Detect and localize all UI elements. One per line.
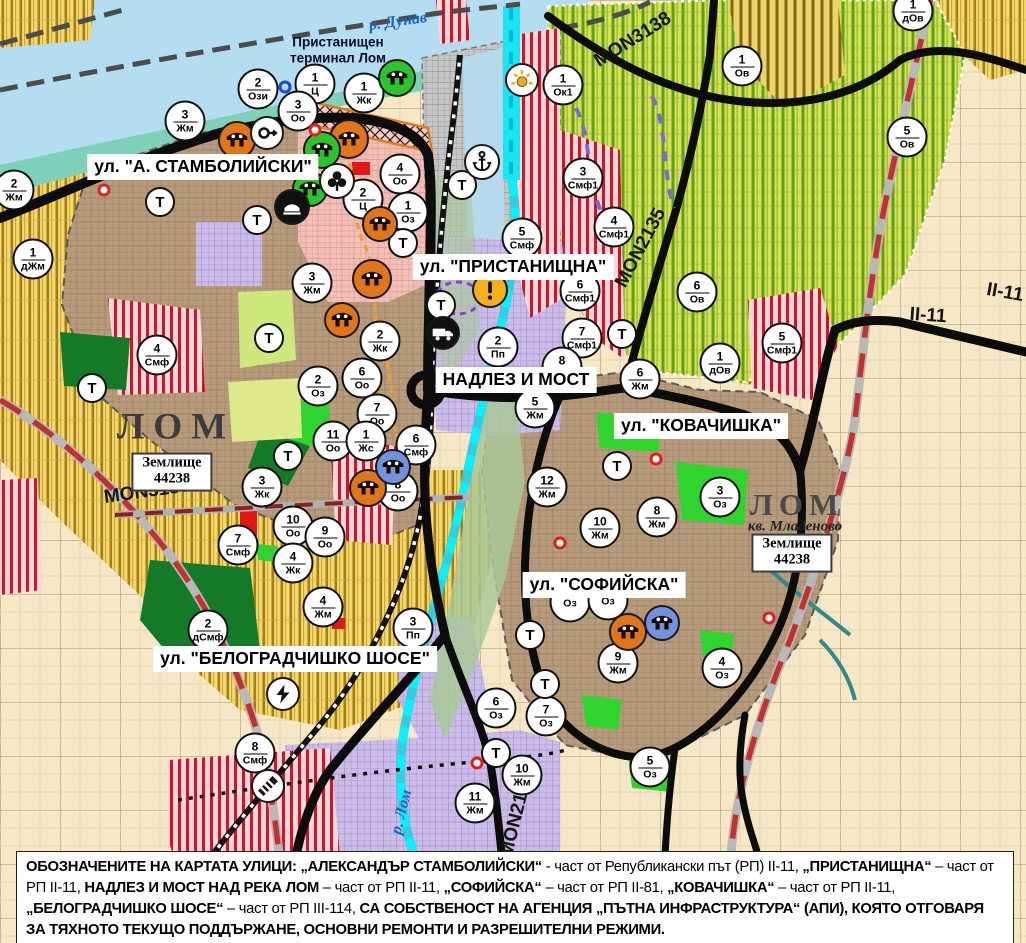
caption-segment: – част от РП III-114, — [223, 901, 359, 917]
caption-segment: „ПРИСТАНИЩНА“ — [802, 859, 931, 875]
caption-segment: – част от РП II-81, — [542, 880, 668, 896]
caption-segment: – част от РП II-11, — [319, 880, 444, 896]
caption-segment: „КОВАЧИШКА“ — [667, 880, 774, 896]
map-base-layers — [0, 0, 1026, 943]
caption-segment: – част от РП II-11, — [774, 880, 895, 896]
caption-segment: НАДЛЕЗ И МОСТ НАД РЕКА ЛОМ — [84, 880, 319, 896]
map-caption: ОБОЗНАЧЕНИТЕ НА КАРТАТА УЛИЦИ: „АЛЕКСАНД… — [16, 851, 1014, 943]
caption-segment: ОБОЗНАЧЕНИТЕ НА КАРТАТА УЛИЦИ: „АЛЕКСАНД… — [26, 859, 542, 875]
zoning-map[interactable]: MON3138MON2135MON3139MON2136II-11II-11 2… — [0, 0, 1026, 943]
caption-segment: „БЕЛОГРАДЧИШКО ШОСЕ“ — [26, 901, 223, 917]
caption-segment: - част от Републикански път (РП) II-11, — [542, 859, 802, 875]
caption-segment: „СОФИЙСКА“ — [444, 880, 542, 896]
